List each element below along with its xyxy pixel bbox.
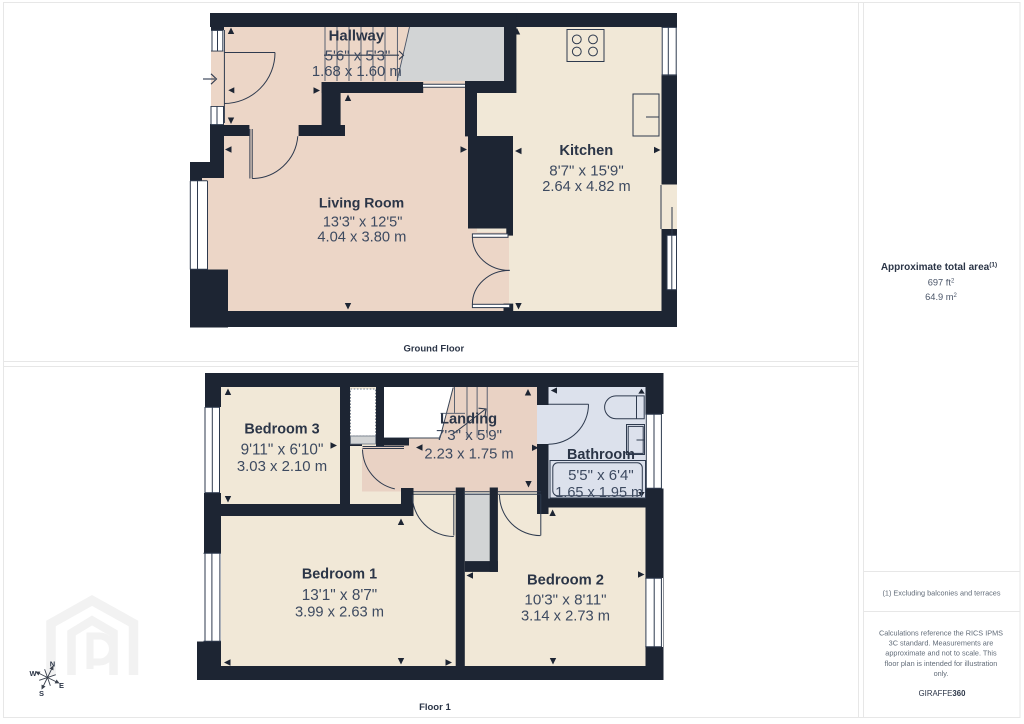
svg-text:1.68 x 1.60 m: 1.68 x 1.60 m	[312, 64, 402, 80]
svg-text:Bedroom 1: Bedroom 1	[302, 566, 377, 582]
svg-text:Living Room: Living Room	[319, 195, 404, 211]
svg-text:S: S	[39, 689, 44, 698]
svg-text:(1) Excluding balconies and te: (1) Excluding balconies and terraces	[882, 589, 1000, 598]
svg-text:13'1" x 8'7": 13'1" x 8'7"	[302, 587, 377, 604]
svg-text:Bedroom 3: Bedroom 3	[244, 421, 319, 437]
svg-text:Calculations reference the RIC: Calculations reference the RICS IPMS	[879, 629, 1003, 638]
svg-text:7'3" x 5'9": 7'3" x 5'9"	[436, 427, 502, 444]
svg-text:64.9 m2: 64.9 m2	[925, 292, 957, 302]
svg-text:3.99 x 2.63 m: 3.99 x 2.63 m	[295, 604, 384, 620]
svg-text:Floor 1: Floor 1	[419, 702, 451, 713]
svg-text:5'6" x 5'3": 5'6" x 5'3"	[325, 47, 391, 64]
svg-text:Ground Floor: Ground Floor	[403, 343, 464, 354]
svg-text:W: W	[29, 669, 37, 678]
svg-text:Hallway: Hallway	[329, 29, 385, 45]
svg-text:697 ft2: 697 ft2	[928, 277, 955, 287]
svg-text:Landing: Landing	[440, 412, 497, 428]
svg-text:8'7" x 15'9": 8'7" x 15'9"	[549, 162, 623, 179]
svg-text:N: N	[50, 659, 55, 668]
svg-text:3.03 x 2.10 m: 3.03 x 2.10 m	[237, 459, 327, 475]
svg-text:1.65 x 1.95 m: 1.65 x 1.95 m	[555, 485, 643, 501]
svg-text:floor plan is intended for ill: floor plan is intended for illustration	[885, 659, 998, 668]
svg-text:E: E	[59, 681, 64, 690]
svg-text:GIRAFFE360: GIRAFFE360	[919, 689, 966, 698]
svg-text:2.23 x 1.75 m: 2.23 x 1.75 m	[424, 447, 513, 463]
svg-text:13'3" x 12'5": 13'3" x 12'5"	[323, 215, 403, 231]
svg-text:approximate and not to scale.: approximate and not to scale. This	[885, 649, 997, 658]
svg-text:Bathroom: Bathroom	[567, 447, 635, 463]
svg-text:Bedroom 2: Bedroom 2	[527, 573, 604, 589]
svg-text:10'3" x 8'11": 10'3" x 8'11"	[524, 592, 606, 609]
svg-text:Approximate total area(1): Approximate total area(1)	[881, 261, 997, 273]
svg-text:9'11" x 6'10": 9'11" x 6'10"	[241, 441, 324, 458]
svg-text:2.64 x 4.82 m: 2.64 x 4.82 m	[542, 179, 630, 195]
svg-text:only.: only.	[934, 669, 949, 678]
svg-text:3.14 x 2.73 m: 3.14 x 2.73 m	[521, 609, 610, 625]
svg-text:3C standard. Measurements are: 3C standard. Measurements are	[889, 639, 994, 648]
svg-text:4.04 x 3.80 m: 4.04 x 3.80 m	[317, 230, 406, 246]
svg-text:5'5" x 6'4": 5'5" x 6'4"	[568, 467, 634, 484]
svg-text:Kitchen: Kitchen	[559, 143, 613, 159]
